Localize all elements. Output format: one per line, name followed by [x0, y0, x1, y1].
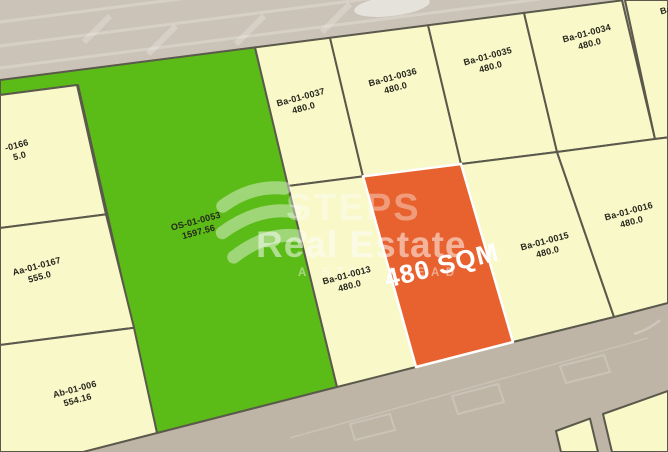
- plot-map: STEPS Real Estate A STEP AHEAD 480 SQM -…: [0, 0, 668, 452]
- label-corner-top-right: Ba: [659, 3, 668, 16]
- svg-text:Ba: Ba: [659, 3, 668, 16]
- watermark-brand-top: STEPS: [286, 187, 421, 229]
